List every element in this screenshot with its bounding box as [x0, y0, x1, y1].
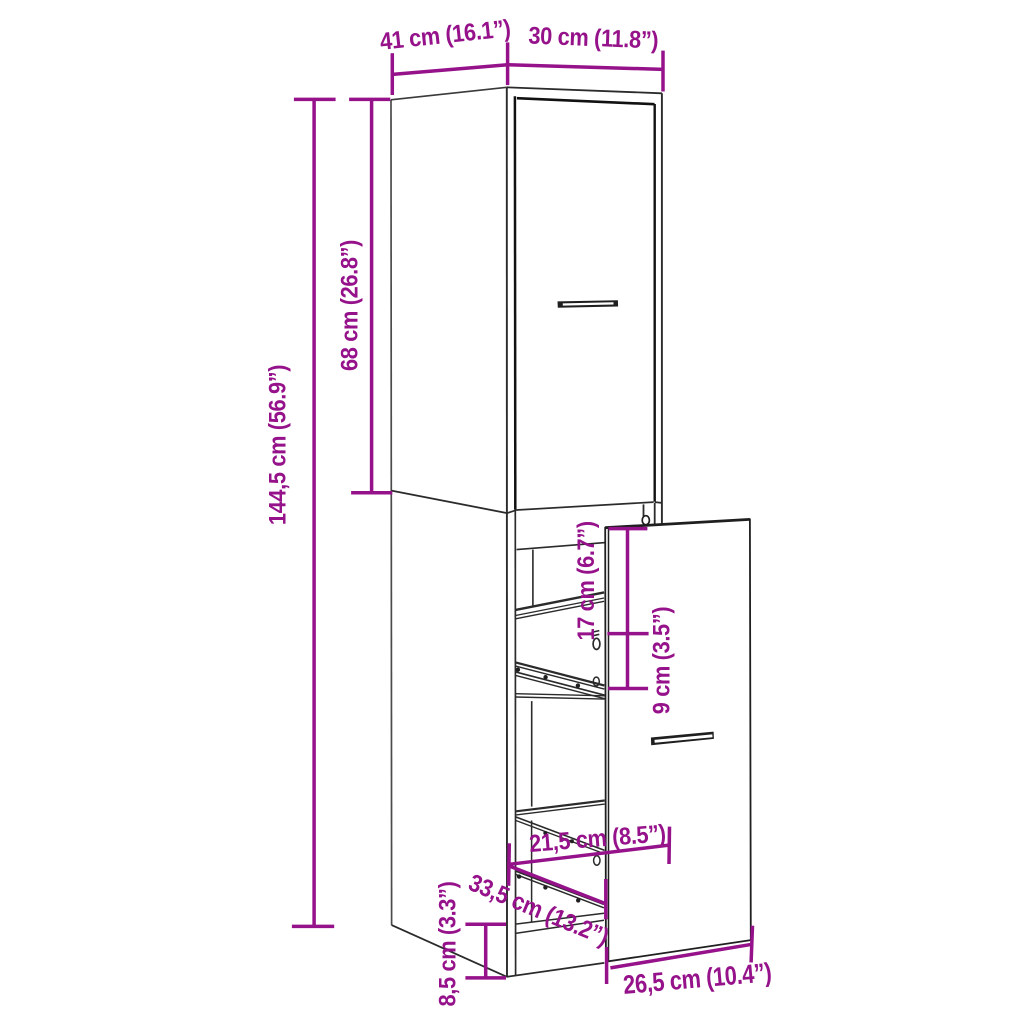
svg-text:9 cm (3.5”): 9 cm (3.5”) — [647, 607, 674, 715]
svg-text:30 cm (11.8”): 30 cm (11.8”) — [528, 21, 659, 53]
svg-text:17 cm (6.7”): 17 cm (6.7”) — [572, 521, 599, 640]
svg-text:8,5 cm (3.3”): 8,5 cm (3.3”) — [433, 882, 460, 1007]
svg-text:144,5 cm (56.9”): 144,5 cm (56.9”) — [263, 365, 290, 525]
svg-text:68 cm (26.8”): 68 cm (26.8”) — [335, 240, 362, 371]
